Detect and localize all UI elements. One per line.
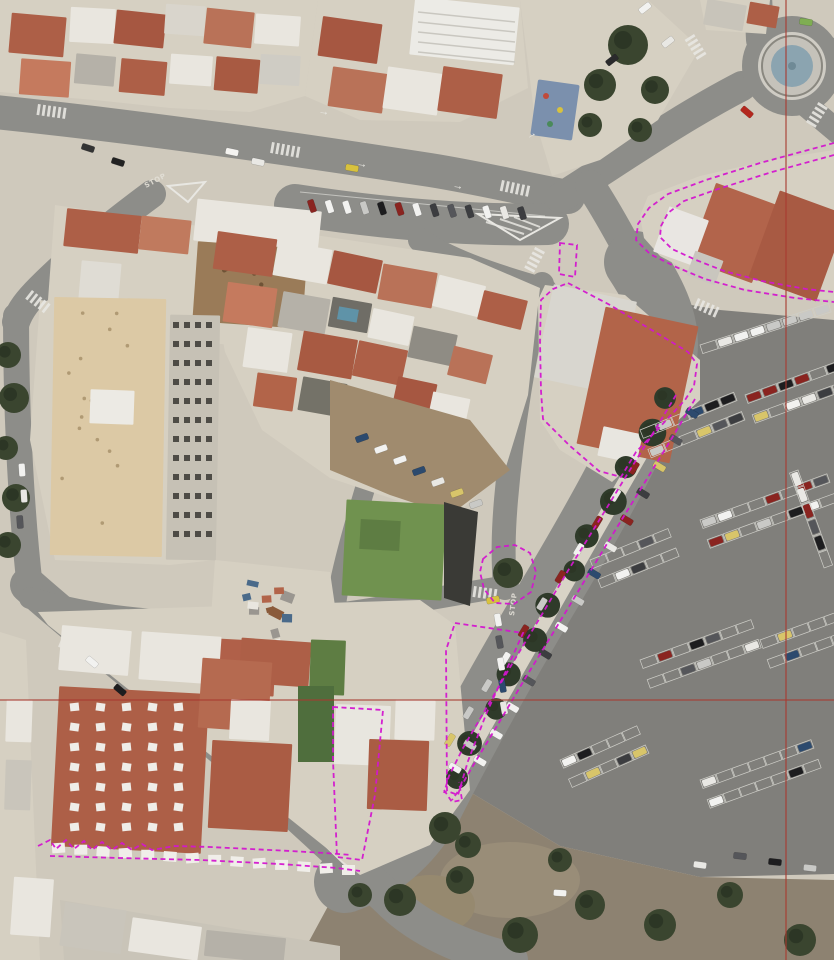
playground-equipment [543,93,549,99]
tree-core [579,528,590,539]
roof-window [206,379,212,385]
terrace-umbrella [122,782,132,791]
roof-speck [78,427,82,431]
roof [222,282,277,329]
terrace-umbrella [121,722,131,731]
roof [242,327,292,373]
tree-core [649,914,663,928]
tree-core [6,488,19,501]
terrace-umbrella [122,822,132,831]
playground-equipment [557,107,563,113]
roof [318,16,383,64]
roof-speck [60,477,64,481]
car-icon [18,463,25,476]
roof-speck [126,344,130,348]
roof [19,58,71,97]
roof-window [173,474,179,480]
car-icon [553,889,566,896]
roof-window [206,417,212,423]
roof-window [173,322,179,328]
roof-window [184,436,190,442]
lane-arrow: → [451,179,464,193]
roof-speck [108,328,112,332]
car-icon [16,515,23,528]
roof [119,58,168,96]
tree-core [4,388,18,402]
roof [10,877,54,938]
roof-window [206,398,212,404]
roof-window [195,474,201,480]
roof-window [206,474,212,480]
terrace-umbrella [96,722,106,731]
roof-window [184,341,190,347]
roof-speck [80,415,84,419]
terrace-umbrella [173,802,183,811]
roof [5,700,32,743]
car-icon [733,852,747,860]
terrace-umbrella [95,782,105,791]
roof-window [173,398,179,404]
tree-core [721,886,733,898]
fountain-center [788,62,796,70]
tree-core [450,870,463,883]
lane-arrow: → [318,105,331,118]
tree-core [352,887,363,898]
roof-window [184,531,190,537]
terrace-umbrella [148,762,158,771]
roof [164,4,206,37]
roof-window [195,417,201,423]
tree-core [459,836,471,848]
roof-window [195,322,201,328]
roof-window [206,360,212,366]
roof [208,740,292,832]
roof-window [195,436,201,442]
playground [530,79,579,140]
terrace-umbrella [121,802,131,811]
roof-window [173,531,179,537]
terrace-umbrella [147,782,157,791]
court-green [298,686,334,762]
roof-window [195,455,201,461]
roof-window [173,512,179,518]
roof [253,372,297,411]
green-roof-court [359,519,401,551]
terrace-umbrella [69,762,79,771]
terrace-umbrella [70,742,80,751]
roof-window [184,379,190,385]
terrace-umbrella [70,822,80,831]
terrace-umbrella [174,782,184,791]
roof [203,8,255,49]
terrace-umbrella [173,722,183,731]
tree-core [645,80,658,93]
terrace-umbrella [173,762,183,771]
tree-core [498,563,512,577]
roof-speck [115,312,119,316]
terrace-umbrella [174,702,184,711]
tree-core [552,852,563,863]
terrace-umbrella [96,802,106,811]
roof [89,389,134,425]
roof-window [184,512,190,518]
tree-core [589,74,603,88]
terrace-umbrella [95,702,105,711]
terrace-umbrella [174,822,184,831]
roof-window [195,379,201,385]
roof [437,66,503,119]
tree-core [507,922,523,938]
tree-core [789,929,803,943]
roof-window [206,436,212,442]
roof [214,56,261,94]
tree-core [657,390,667,400]
roof-window [173,436,179,442]
roof-window [206,341,212,347]
roof-window [206,493,212,499]
roof-window [195,531,201,537]
terrace-umbrella [147,742,157,751]
terrace-umbrella [147,822,157,831]
tree-core [614,31,632,49]
roof-window [206,322,212,328]
roof [229,699,271,741]
roof [113,9,166,48]
roof-window [206,531,212,537]
roof-speck [82,397,86,401]
terrace-umbrella [122,702,132,711]
tree-core [632,122,643,133]
terrace-umbrella [69,722,79,731]
roof [58,625,132,676]
roof [138,215,191,254]
roof-speck [108,449,112,453]
yard-clutter [247,601,258,609]
roof-speck [100,521,104,525]
map-viewport[interactable]: →→→→ STOP STOP [0,0,834,960]
terrace-umbrella [70,782,80,791]
terrace-umbrella [96,762,106,771]
roof-window [173,341,179,347]
roof [8,13,66,58]
terrace-umbrella [148,722,158,731]
roof-speck [81,311,85,315]
terrace-umbrella [70,702,80,711]
terrace-umbrella [69,802,79,811]
roof [59,902,127,954]
car-icon [768,858,782,866]
roof-window [184,398,190,404]
playground-equipment [547,121,553,127]
roof-window [195,512,201,518]
terrace-umbrella [121,762,131,771]
roof-window [173,493,179,499]
roof-window [195,398,201,404]
roof-window [206,512,212,518]
roof [382,66,442,115]
roof-window [206,455,212,461]
base-imagery-layer: →→→→ STOP STOP [0,0,834,960]
roof [63,208,142,254]
terrace-umbrella [148,802,158,811]
roof [327,66,387,113]
roof-window [184,322,190,328]
aerial-map-canvas[interactable]: →→→→ STOP STOP [0,0,834,960]
yard-clutter [282,614,292,623]
roof [4,760,32,811]
roof [74,53,116,86]
roof [169,54,213,87]
terrace-umbrella [174,742,184,751]
car-icon [803,864,817,872]
plaza-roof [50,297,166,557]
yard-clutter [262,595,272,603]
roof-window [184,417,190,423]
roof-window [173,455,179,461]
car-icon [20,489,27,502]
tree-core [582,117,593,128]
tree-core [580,895,594,909]
roof [394,699,435,740]
tree-core [389,889,403,903]
roof-window [173,379,179,385]
roof [254,13,301,46]
tree-core [434,817,448,831]
yard-clutter [274,587,284,594]
roof-speck [79,357,83,361]
roof-window [195,493,201,499]
roof [78,260,121,301]
shop-awning [163,851,177,862]
roof-window [173,417,179,423]
roundabout [758,32,826,100]
roof-speck [116,464,120,468]
shop-awning [186,853,200,864]
roof-window [184,474,190,480]
roof-window [184,493,190,499]
roof [259,54,301,86]
patio-detail [259,282,263,286]
roof-window [195,341,201,347]
terrace-umbrella [95,742,105,751]
terrace-umbrella [95,822,105,831]
roof-speck [96,438,100,442]
roof-window [184,360,190,366]
roof [69,7,116,44]
roof-window [184,455,190,461]
terrace-umbrella [122,742,132,751]
roof-speck [67,371,71,375]
roof-window [195,360,201,366]
roof-window [173,360,179,366]
terrace-umbrella [147,702,157,711]
